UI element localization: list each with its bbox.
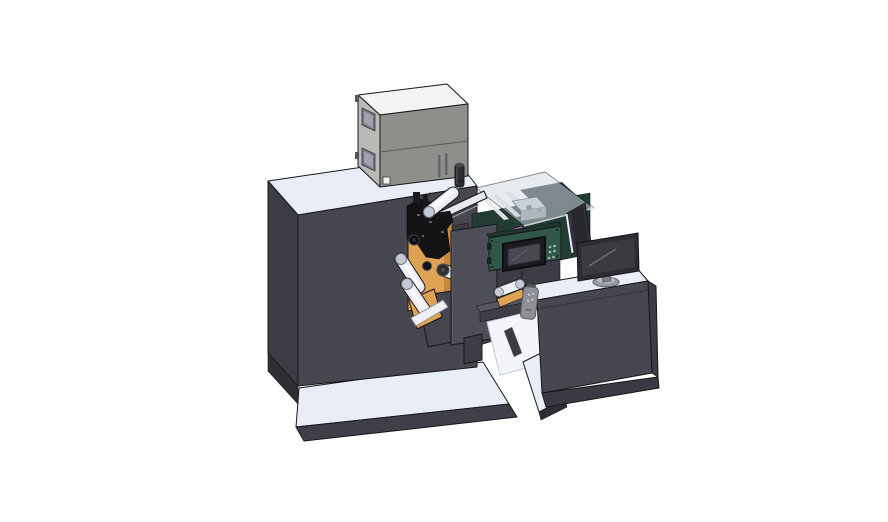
cabinet-left-side — [268, 181, 298, 386]
box-vent-slit — [438, 155, 441, 177]
box-hinge-bottom — [355, 152, 359, 159]
top-printer-box — [355, 84, 468, 187]
remote-body — [520, 286, 539, 320]
roller-cap — [516, 280, 525, 289]
panel-tab — [487, 243, 492, 250]
roller-cap — [424, 207, 435, 218]
desk-console — [525, 267, 659, 407]
roller-cap — [495, 288, 504, 297]
roller-cap — [402, 279, 413, 290]
cad-render-canvas: 3D CAD rendering of a roll-fed digital l… — [0, 0, 888, 522]
desk-front — [537, 281, 652, 393]
box-hinge-top — [355, 95, 359, 102]
roller-cap — [396, 254, 407, 265]
carriage-foot — [464, 334, 482, 364]
exhaust-cylinder — [455, 163, 464, 187]
stub-roller — [437, 264, 452, 276]
stub-roller-core — [441, 268, 445, 272]
panel-tab — [487, 257, 492, 264]
box-label-square — [383, 177, 390, 184]
box-vent-slit — [445, 153, 448, 175]
print-head-post — [413, 192, 420, 203]
cad-viewport: 3D CAD rendering of a roll-fed digital l… — [0, 0, 888, 522]
shaft-cap — [423, 262, 432, 271]
head-bearing-core — [412, 238, 416, 242]
print-head-post — [423, 195, 428, 204]
cylinder-body — [455, 164, 464, 187]
cylinder-cap — [455, 163, 464, 167]
